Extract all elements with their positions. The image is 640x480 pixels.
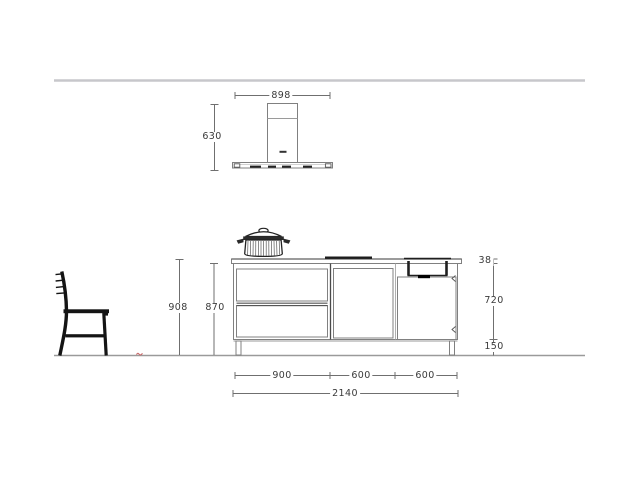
dim-label-segment-right: 600: [413, 371, 436, 381]
middle-door: [334, 269, 394, 339]
dim-label-carcass-height: 720: [482, 296, 505, 306]
red-floor-mark: [137, 353, 143, 355]
bar-stool: [56, 272, 110, 356]
worktop: [232, 259, 462, 264]
elevation-drawing: [0, 0, 640, 480]
sink-drain: [418, 275, 430, 278]
dim-label-hood-height: 630: [200, 132, 223, 142]
dim-label-plinth-height: 150: [482, 342, 505, 352]
drawer-front-bottom: [237, 306, 328, 337]
stool-seat: [64, 309, 110, 313]
stool-footrest: [66, 334, 106, 337]
pot-handle-left: [237, 239, 244, 244]
pot-handle-right: [284, 239, 291, 244]
dim-label-hood-width: 898: [269, 91, 292, 101]
dim-label-total-width: 2140: [330, 389, 360, 399]
dim-label-worktop-thickness: 38: [477, 256, 494, 266]
dim-label-cabinet-height: 870: [203, 303, 226, 313]
island-leg-left: [236, 341, 241, 355]
cooker-hood: [233, 104, 333, 169]
dim-label-segment-middle: 600: [349, 371, 372, 381]
drawer-front-top: [237, 269, 328, 301]
hood-chimney: [268, 104, 298, 163]
stool-back-and-rear-leg: [60, 272, 67, 356]
pot-lid: [246, 232, 282, 237]
hood-logo-mark: [280, 151, 287, 153]
elevation-drawing-canvas: 898 630 908 870 38 720 150 900 600 600 2…: [0, 0, 640, 480]
island-leg-right: [450, 341, 455, 355]
dim-label-segment-left: 900: [270, 371, 293, 381]
dim-label-worktop-height: 908: [166, 303, 189, 313]
kitchen-island: [232, 258, 462, 355]
cooking-pot: [237, 228, 291, 256]
right-door: [398, 277, 457, 340]
